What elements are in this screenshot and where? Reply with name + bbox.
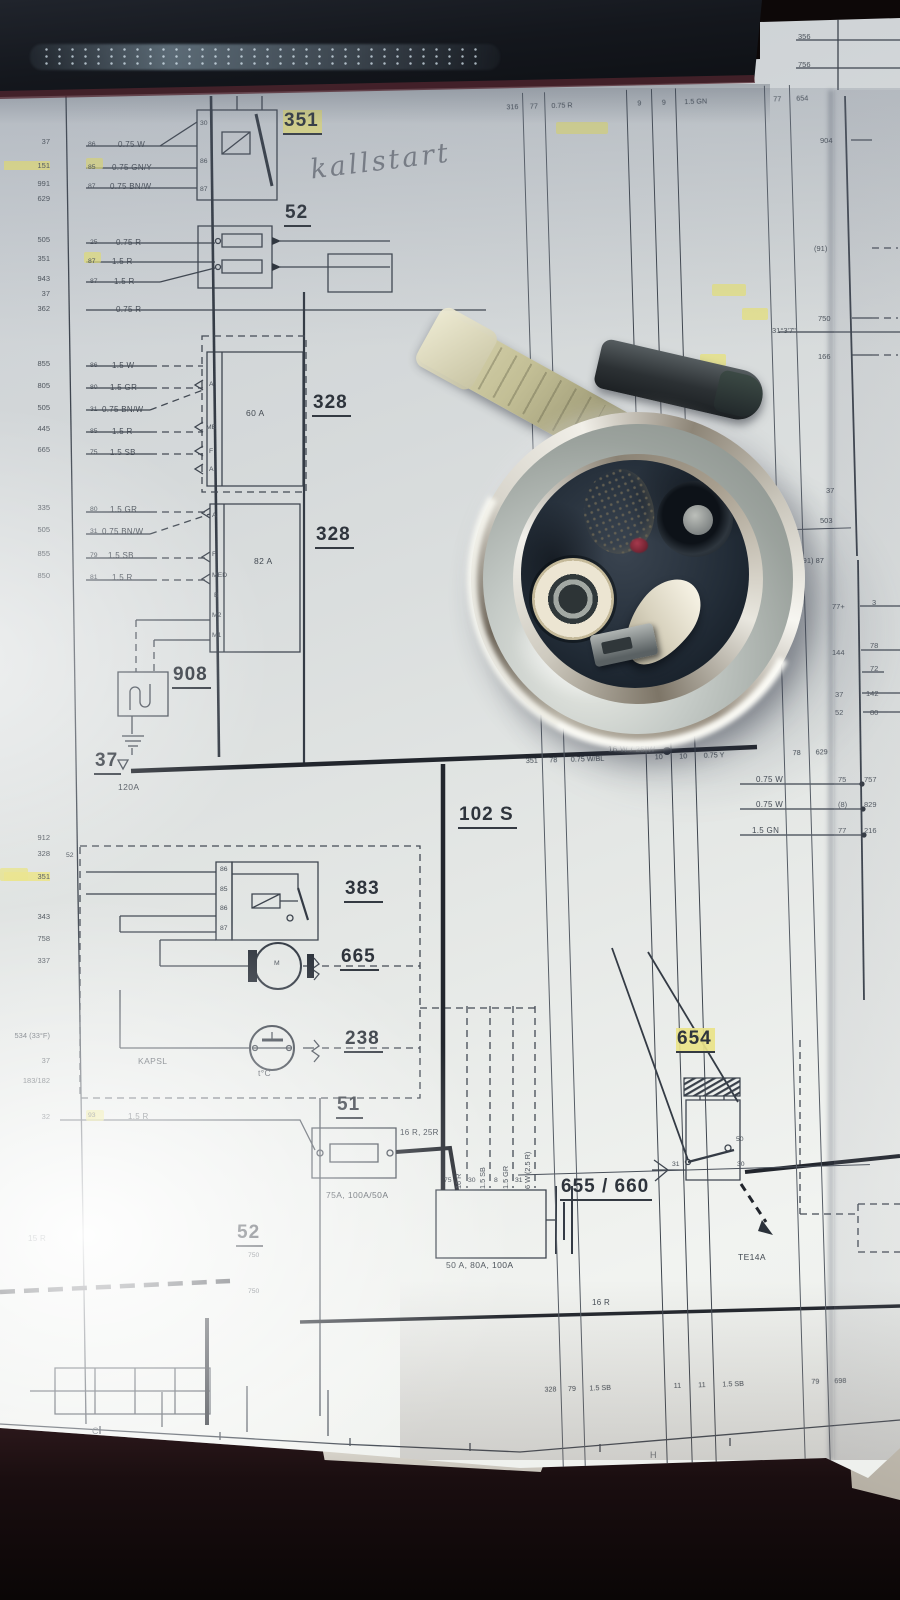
connector-pin-table: 316 77 0.75 R 9 9 1.5 GN 77 654 351 78 0…	[486, 84, 900, 1600]
photo-of-wiring-diagram: 316 77 0.75 R 9 9 1.5 GN 77 654 351 78 0…	[0, 0, 900, 1600]
pin-table-row: 316 77 0.75 R 9 9 1.5 GN 77 654	[486, 84, 857, 748]
pin-table-row: 351 78 0.75 W/BL 10 10 0.75 Y 78 629	[505, 737, 876, 1376]
ruler-speckle	[40, 46, 480, 68]
schematic-paper: 316 77 0.75 R 9 9 1.5 GN 77 654 351 78 0…	[0, 0, 900, 1600]
